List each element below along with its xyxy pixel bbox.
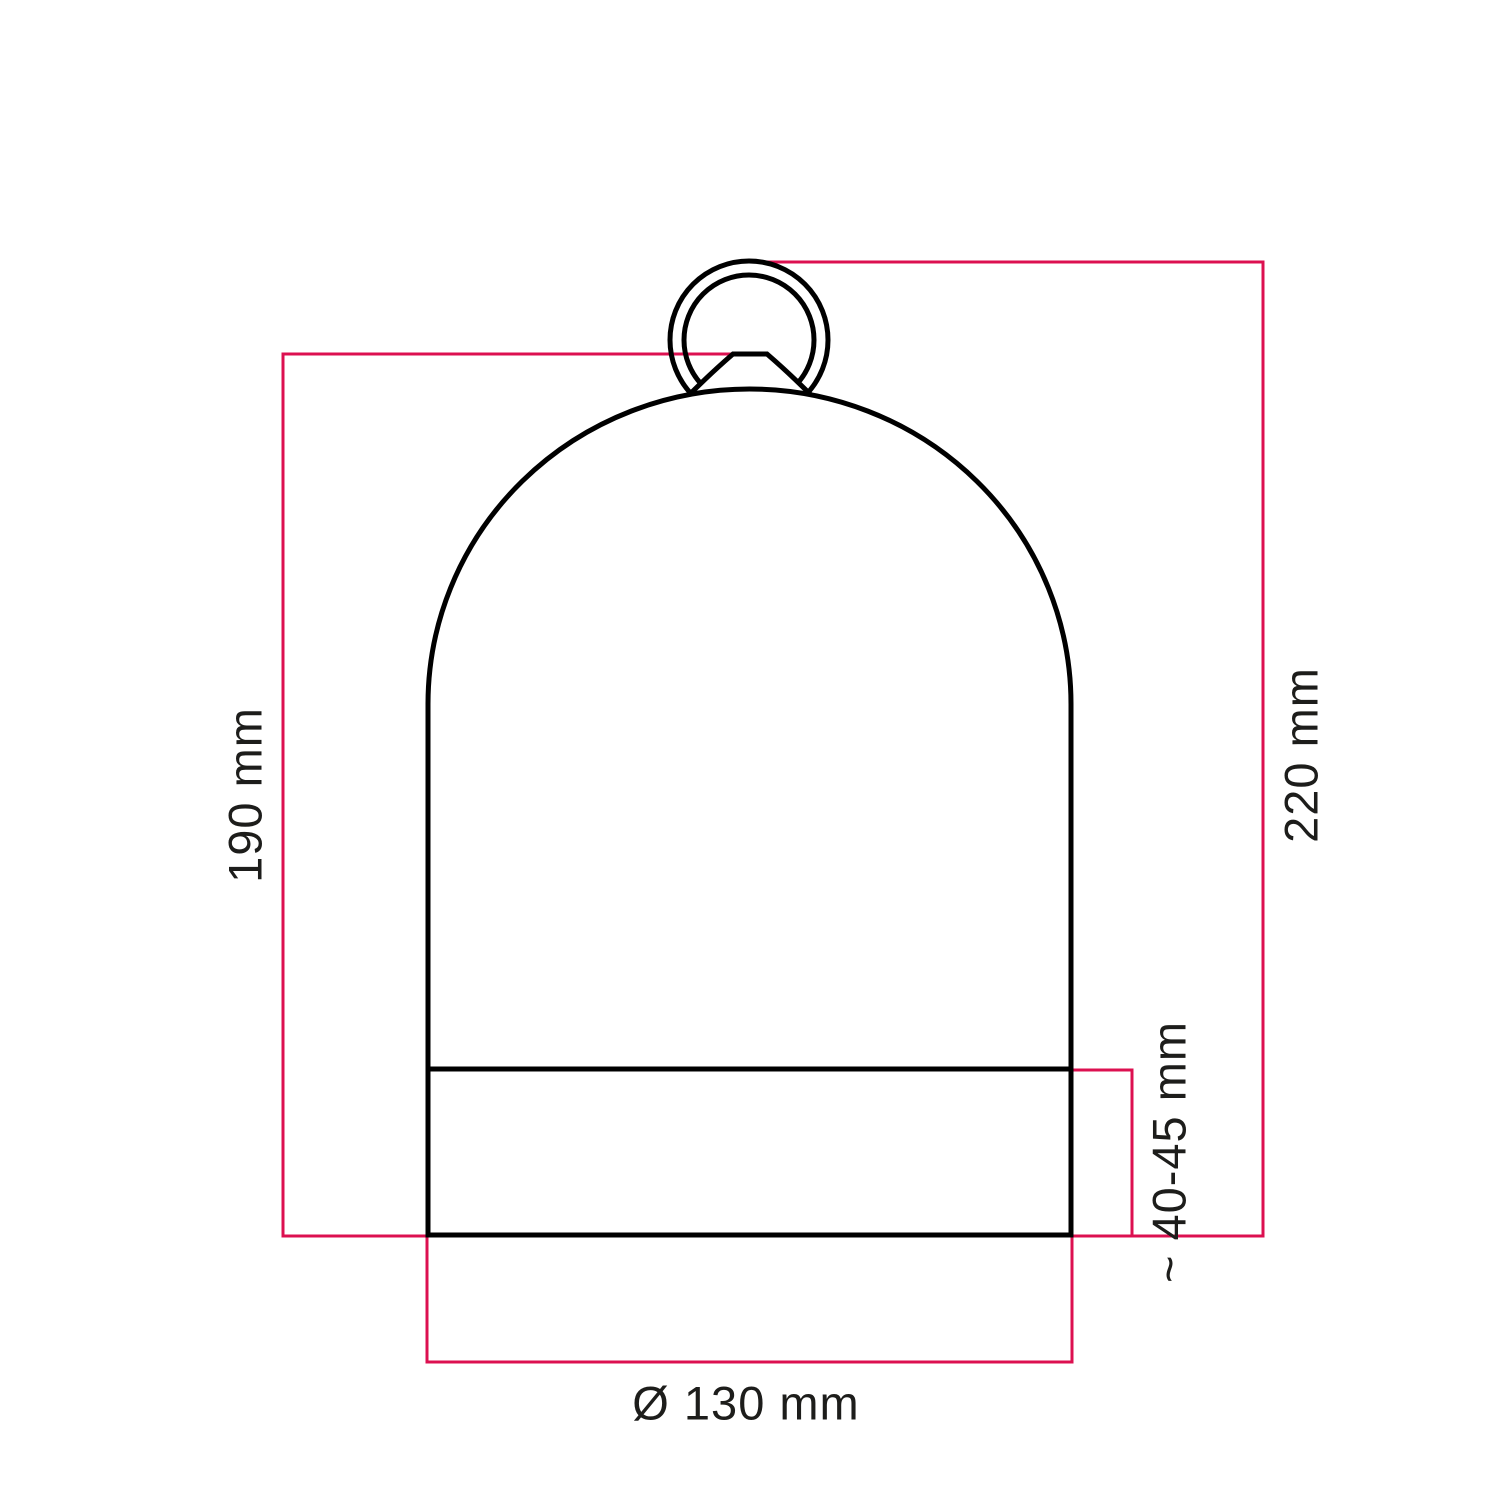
label-base-band-height: ~ 40-45 mm [1143, 1021, 1196, 1283]
label-total-height: 220 mm [1275, 667, 1328, 843]
bell-body-outline [428, 389, 1071, 1235]
diagram-canvas: 190 mm 220 mm ~ 40-45 mm Ø 130 mm [0, 0, 1500, 1500]
label-body-height: 190 mm [219, 707, 272, 883]
label-diameter: Ø 130 mm [632, 1377, 859, 1430]
bell-dimension-diagram: 190 mm 220 mm ~ 40-45 mm Ø 130 mm [0, 0, 1500, 1500]
